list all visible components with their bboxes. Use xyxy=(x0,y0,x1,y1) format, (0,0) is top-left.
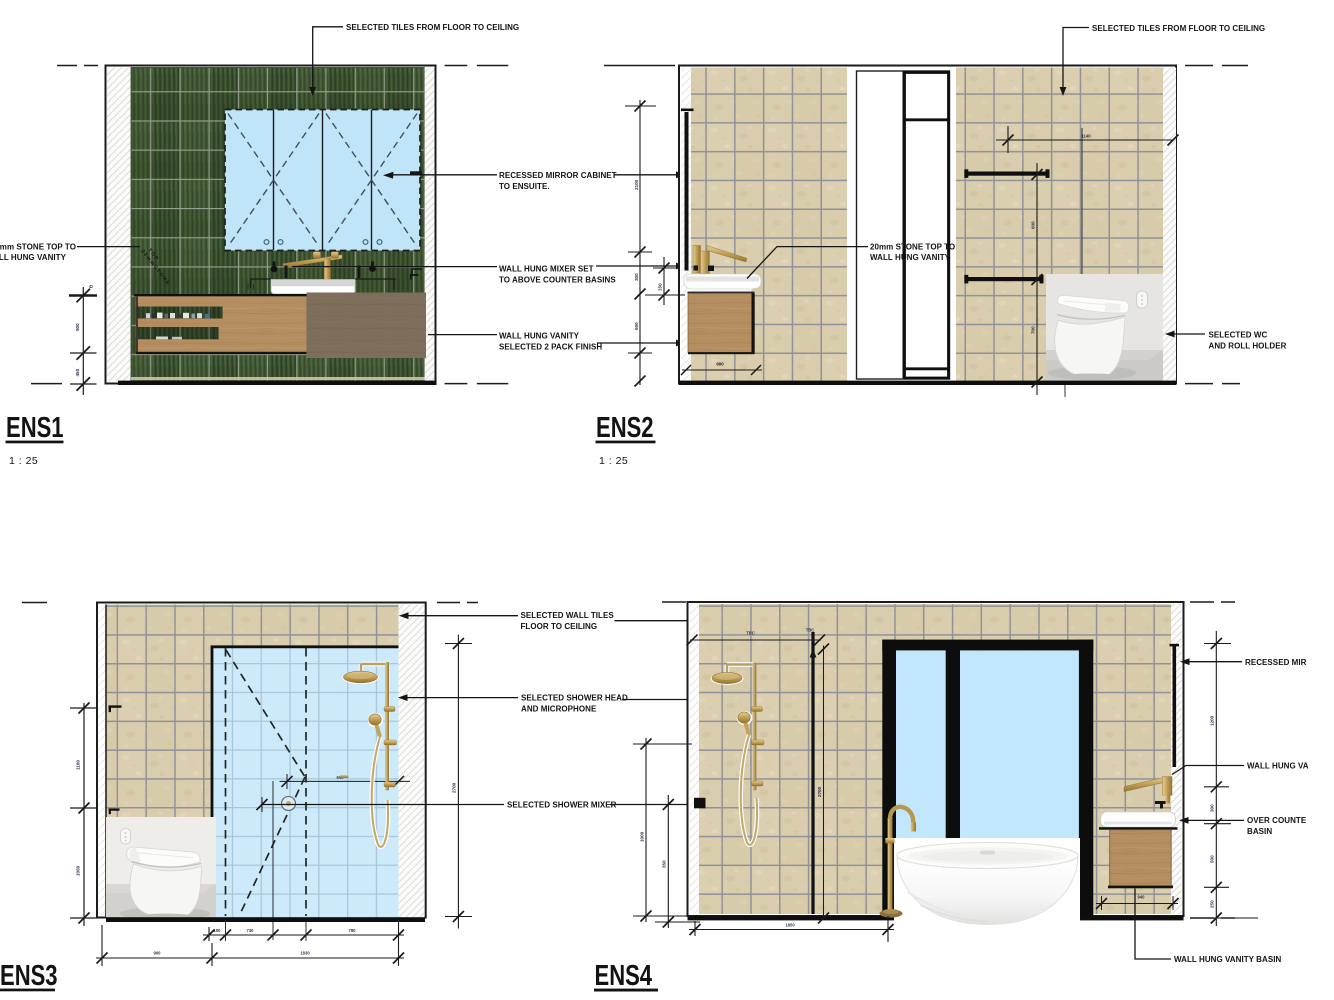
svg-text:900: 900 xyxy=(154,951,162,956)
svg-text:AND ROLL HOLDER: AND ROLL HOLDER xyxy=(1209,341,1287,350)
svg-text:1850: 1850 xyxy=(785,922,795,927)
svg-text:SELECTED SHOWER MIXER: SELECTED SHOWER MIXER xyxy=(507,800,617,809)
svg-text:BASIN: BASIN xyxy=(1247,827,1272,836)
svg-text:1 : 25: 1 : 25 xyxy=(599,455,628,467)
svg-text:600: 600 xyxy=(1031,221,1036,229)
svg-text:TO ABOVE COUNTER BASINS: TO ABOVE COUNTER BASINS xyxy=(499,276,616,285)
svg-text:600: 600 xyxy=(634,322,639,330)
svg-text:500: 500 xyxy=(1210,855,1215,863)
svg-text:TBC: TBC xyxy=(806,628,815,633)
svg-text:ENS1: ENS1 xyxy=(6,412,64,444)
svg-text:ENS3: ENS3 xyxy=(0,960,58,992)
svg-text:WALL HUNG VANITY BASIN: WALL HUNG VANITY BASIN xyxy=(1174,955,1281,964)
svg-text:AND MICROPHONE: AND MICROPHONE xyxy=(521,704,597,713)
svg-text:2700: 2700 xyxy=(817,786,822,797)
svg-text:WALL HUNG VA: WALL HUNG VA xyxy=(1247,762,1309,771)
svg-text:900: 900 xyxy=(75,323,80,331)
svg-text:780: 780 xyxy=(349,928,357,933)
svg-text:350: 350 xyxy=(662,860,667,868)
svg-text:TO ENSUITE.: TO ENSUITE. xyxy=(499,182,550,191)
svg-text:WALL HUNG VANITY: WALL HUNG VANITY xyxy=(870,253,951,262)
svg-text:2700: 2700 xyxy=(452,782,457,793)
svg-text:1830: 1830 xyxy=(300,951,310,956)
svg-text:1050: 1050 xyxy=(76,865,81,876)
svg-text:SELECTED WALL TILES: SELECTED WALL TILES xyxy=(521,611,615,620)
svg-text:1000: 1000 xyxy=(640,831,645,842)
svg-text:100: 100 xyxy=(214,928,222,933)
svg-text:450: 450 xyxy=(75,368,80,376)
svg-text:250: 250 xyxy=(1210,900,1215,908)
svg-text:RECESSED MIRROR CABINET: RECESSED MIRROR CABINET xyxy=(499,171,617,180)
svg-text:300: 300 xyxy=(634,273,639,281)
svg-text:940: 940 xyxy=(1138,894,1146,899)
svg-text:ENS4: ENS4 xyxy=(595,960,653,992)
svg-text:1140: 1140 xyxy=(1081,133,1091,138)
svg-text:FLOOR TO CEILING: FLOOR TO CEILING xyxy=(521,622,598,631)
svg-text:SELECTED SHOWER HEAD: SELECTED SHOWER HEAD xyxy=(521,693,628,702)
svg-text:700: 700 xyxy=(1031,326,1036,334)
svg-text:WALL HUNG MIXER SET: WALL HUNG MIXER SET xyxy=(499,265,594,274)
svg-text:1100: 1100 xyxy=(76,760,81,770)
svg-text:1200: 1200 xyxy=(1210,715,1215,726)
svg-text:SELECTED WC: SELECTED WC xyxy=(1209,330,1268,339)
svg-text:20mm STONE TOP TO: 20mm STONE TOP TO xyxy=(870,243,955,252)
svg-text:1 : 25: 1 : 25 xyxy=(9,455,38,467)
svg-text:2100: 2100 xyxy=(634,179,639,190)
svg-text:SELECTED TILES FROM FLOOR TO C: SELECTED TILES FROM FLOOR TO CEILING xyxy=(1092,24,1265,33)
svg-text:SELECTED TILES FROM FLOOR TO C: SELECTED TILES FROM FLOOR TO CEILING xyxy=(346,23,519,32)
svg-text:WALL HUNG VANITY: WALL HUNG VANITY xyxy=(499,332,580,341)
svg-text:600: 600 xyxy=(716,362,724,367)
svg-text:730: 730 xyxy=(247,928,255,933)
svg-text:TBC: TBC xyxy=(746,631,755,636)
svg-text:RECESSED MIR: RECESSED MIR xyxy=(1245,658,1307,667)
svg-text:SELECTED 2 PACK FINISH: SELECTED 2 PACK FINISH xyxy=(499,343,602,352)
svg-text:ALL HUNG VANITY: ALL HUNG VANITY xyxy=(0,253,67,262)
svg-text:0mm STONE TOP TO: 0mm STONE TOP TO xyxy=(0,242,76,251)
svg-text:OVER COUNTE: OVER COUNTE xyxy=(1247,816,1307,825)
svg-text:150: 150 xyxy=(658,283,663,291)
svg-text:300: 300 xyxy=(1210,804,1215,812)
svg-text:ENS2: ENS2 xyxy=(596,412,654,444)
